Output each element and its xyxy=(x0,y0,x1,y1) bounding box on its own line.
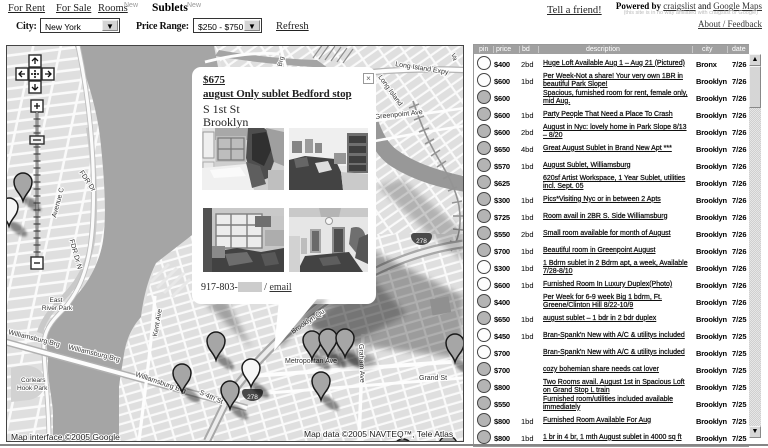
svg-text:East: East xyxy=(49,297,62,304)
svg-text:Hook Park: Hook Park xyxy=(17,385,48,392)
svg-text:River Park: River Park xyxy=(42,305,73,312)
svg-text:278: 278 xyxy=(416,238,427,245)
svg-text:Metropolitan Ave: Metropolitan Ave xyxy=(285,358,337,365)
svg-text:278: 278 xyxy=(247,394,258,401)
svg-text:Corlears: Corlears xyxy=(21,377,46,384)
svg-text:Grand St: Grand St xyxy=(419,375,447,382)
svg-text:Map interface ©2005 Google: Map interface ©2005 Google xyxy=(11,432,120,441)
svg-text:Map data ©2005 NAVTEQ™, Tele A: Map data ©2005 NAVTEQ™, Tele Atlas xyxy=(304,429,453,439)
